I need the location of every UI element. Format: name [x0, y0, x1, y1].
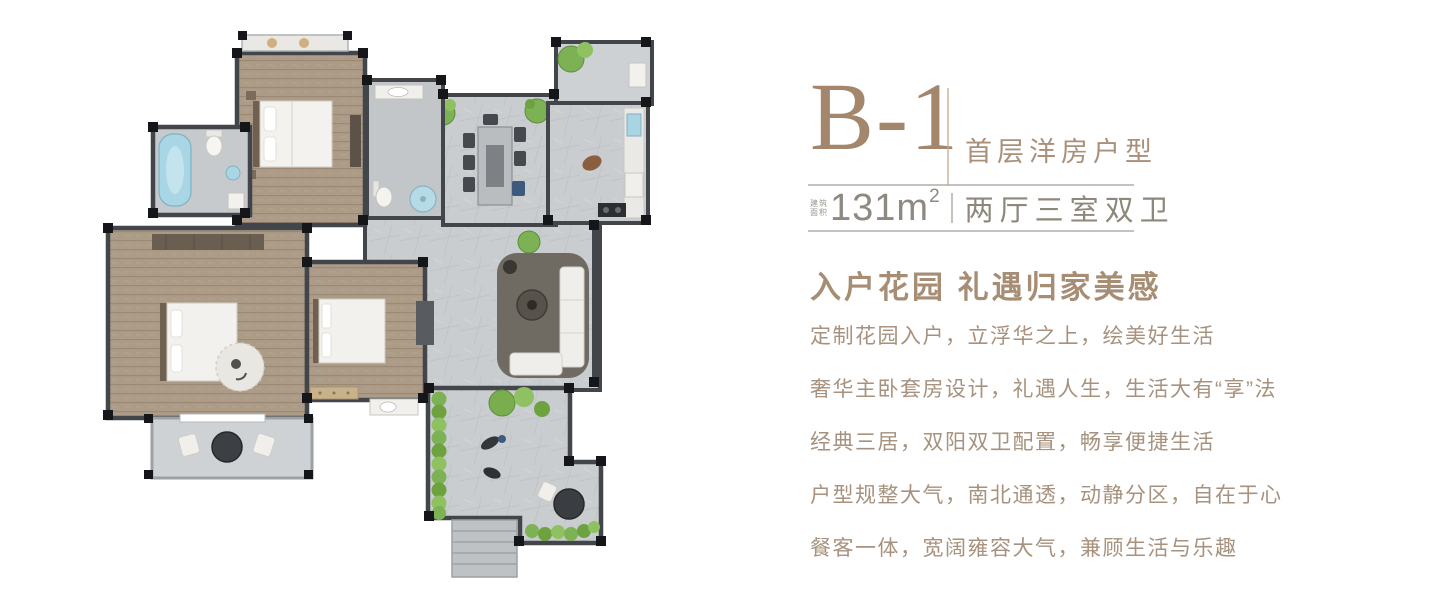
area-value: 131m2 [830, 186, 941, 230]
balcony [144, 414, 313, 479]
floor-plan-image [40, 15, 660, 590]
basin-icon [226, 166, 240, 180]
area-superscript: 2 [929, 186, 941, 207]
title-divider [947, 88, 949, 186]
toilet-icon [206, 136, 222, 156]
wardrobe [152, 234, 264, 250]
toilet-icon [376, 187, 392, 207]
copy-line: 户型规整大气，南北通透，动静分区，自在于心 [810, 479, 1350, 509]
wardrobe [416, 301, 434, 345]
bathroom-left [153, 127, 250, 215]
sofa [560, 267, 584, 367]
entry-steps [452, 520, 517, 577]
area-label-line2: 面积 [810, 208, 828, 217]
garden-table [554, 489, 584, 519]
floor-plan [40, 15, 660, 590]
window [180, 414, 265, 422]
area-divider [951, 193, 953, 223]
room-layout-label: 两厅三室双卫 [965, 187, 1175, 229]
courtyard [428, 387, 601, 577]
copy-line: 定制花园入户，立浮华之上，绘美好生活 [810, 320, 1350, 350]
master-bed [253, 101, 332, 167]
kitchen-sink [627, 114, 641, 136]
selling-point-heading: 入户花园 礼遇归家美感 [810, 262, 1162, 307]
area-label-line1: 建筑 [810, 199, 828, 208]
area-spec-row: 建筑 面积 131m2 两厅三室双卫 [810, 188, 1175, 228]
plant-icon [518, 231, 540, 253]
unit-code: B-1 [810, 62, 960, 172]
dining-area [431, 95, 556, 225]
copy-line: 经典三居，双阳双卫配置，畅享便捷生活 [810, 426, 1350, 456]
area-number: 131m [830, 187, 929, 229]
kitchen [548, 103, 648, 223]
master-bedroom [237, 35, 365, 225]
unit-type-label: 首层洋房户型 [965, 130, 1157, 169]
bay-window [242, 35, 348, 51]
copy-line: 餐客一体，宽阔雍容大气，兼顾生活与乐趣 [810, 532, 1350, 562]
marketing-copy: 定制花园入户，立浮华之上，绘美好生活 奢华主卧套房设计，礼遇人生，生活大有“享”… [810, 320, 1350, 585]
bathroom-middle [367, 80, 443, 218]
area-label: 建筑 面积 [810, 199, 828, 217]
divider-line-bottom [808, 230, 1134, 232]
page: B-1 首层洋房户型 建筑 面积 131m2 两厅三室双卫 入户花园 礼遇归家美… [0, 0, 1440, 603]
entry-garden-top [556, 42, 652, 104]
stove-icon [598, 203, 626, 217]
corridor-sink [370, 399, 418, 415]
copy-line: 奢华主卧套房设计，礼遇人生，生活大有“享”法 [810, 373, 1350, 403]
bedroom-2 [108, 228, 307, 418]
plant-icon [489, 390, 515, 416]
bedroom-3 [307, 262, 434, 400]
balcony-table [212, 432, 242, 462]
bed [313, 299, 385, 363]
hedge-icon [432, 392, 447, 521]
